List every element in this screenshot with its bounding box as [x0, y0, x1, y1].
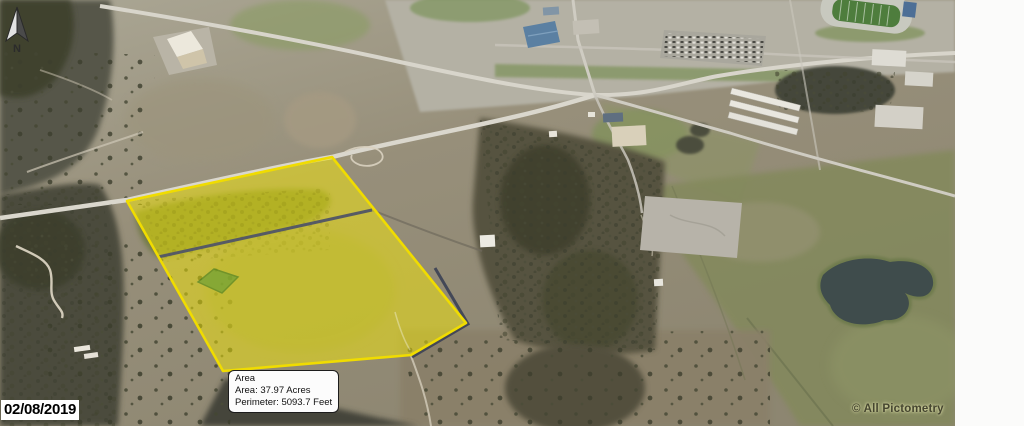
- paved-pad: [640, 196, 742, 258]
- white-margin: [955, 0, 1024, 426]
- copyright-watermark: © All Pictometry: [852, 403, 944, 415]
- measurement-tooltip: Area Area: 37.97 Acres Perimeter: 5093.7…: [228, 370, 339, 413]
- tooltip-perimeter: Perimeter: 5093.7 Feet: [235, 397, 332, 409]
- north-arrow-icon: N: [3, 5, 33, 55]
- north-label: N: [13, 43, 21, 55]
- tooltip-area: Area: 37.97 Acres: [235, 385, 332, 397]
- date-stamp: 02/08/2019: [1, 400, 79, 420]
- aerial-photo: [0, 0, 955, 426]
- tooltip-title: Area: [235, 373, 332, 385]
- aerial-map-view: N Area Area: 37.97 Acres Perimeter: 5093…: [0, 0, 1024, 426]
